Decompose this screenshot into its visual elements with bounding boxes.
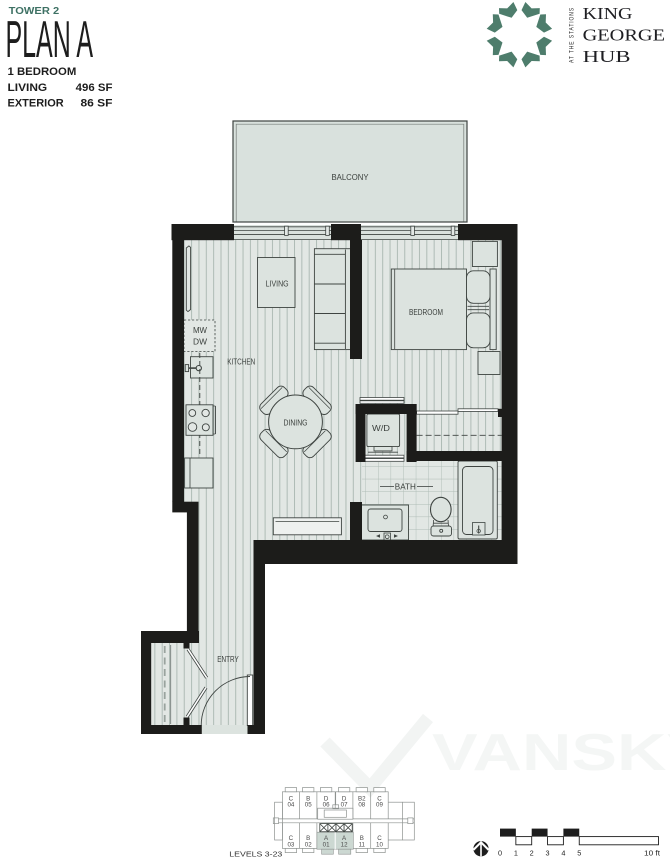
- svg-text:10: 10: [376, 841, 383, 848]
- svg-text:1: 1: [514, 848, 518, 857]
- svg-text:LIVING: LIVING: [8, 82, 48, 94]
- svg-text:11: 11: [359, 841, 366, 848]
- svg-text:06: 06: [323, 802, 330, 809]
- svg-text:HUB: HUB: [583, 47, 631, 66]
- svg-text:1 BEDROOM: 1 BEDROOM: [8, 66, 77, 78]
- svg-text:BEDROOM: BEDROOM: [409, 307, 443, 317]
- svg-text:VANSKY: VANSKY: [432, 724, 670, 782]
- svg-text:AT THE STATIONS: AT THE STATIONS: [569, 7, 576, 63]
- svg-text:LEVELS 3-23: LEVELS 3-23: [229, 849, 282, 858]
- svg-text:496 SF: 496 SF: [76, 82, 113, 94]
- svg-text:05: 05: [305, 802, 312, 809]
- svg-text:09: 09: [376, 802, 383, 809]
- svg-text:KING: KING: [583, 4, 633, 23]
- svg-text:DW: DW: [193, 338, 208, 347]
- svg-text:2: 2: [530, 848, 534, 857]
- svg-text:GEORGE: GEORGE: [583, 26, 665, 45]
- svg-text:BATH: BATH: [395, 482, 416, 492]
- svg-text:MW: MW: [193, 326, 208, 335]
- svg-text:0: 0: [498, 848, 502, 857]
- svg-text:BALCONY: BALCONY: [332, 172, 369, 182]
- svg-text:02: 02: [305, 841, 312, 848]
- svg-text:PLAN A: PLAN A: [6, 11, 94, 69]
- svg-text:07: 07: [341, 802, 348, 809]
- svg-text:DINING: DINING: [284, 418, 308, 428]
- svg-text:12: 12: [341, 841, 348, 848]
- svg-text:KITCHEN: KITCHEN: [227, 357, 255, 367]
- svg-text:04: 04: [287, 802, 294, 809]
- svg-text:10 ft: 10 ft: [644, 848, 660, 857]
- svg-text:ENTRY: ENTRY: [217, 654, 239, 664]
- svg-text:03: 03: [287, 841, 294, 848]
- svg-text:4: 4: [561, 848, 565, 857]
- svg-text:5: 5: [577, 848, 581, 857]
- svg-text:EXTERIOR: EXTERIOR: [8, 98, 64, 110]
- svg-text:W/D: W/D: [372, 424, 390, 433]
- svg-text:LIVING: LIVING: [266, 279, 289, 289]
- svg-text:01: 01: [323, 841, 330, 848]
- svg-text:3: 3: [546, 848, 550, 857]
- svg-text:08: 08: [358, 802, 365, 809]
- svg-text:86 SF: 86 SF: [81, 98, 113, 110]
